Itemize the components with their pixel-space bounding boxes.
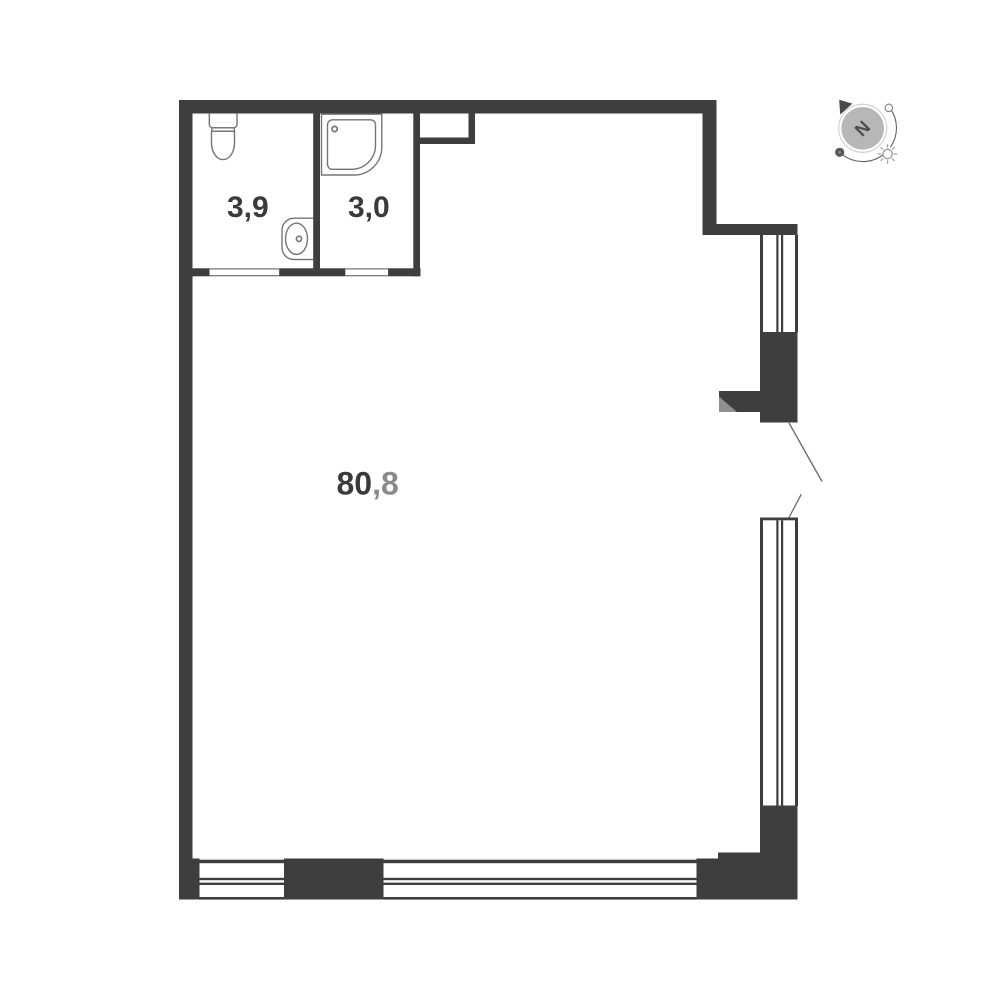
svg-text:3,9: 3,9 — [227, 191, 269, 224]
svg-text:80,8: 80,8 — [337, 466, 399, 502]
svg-text:3,0: 3,0 — [348, 191, 390, 224]
